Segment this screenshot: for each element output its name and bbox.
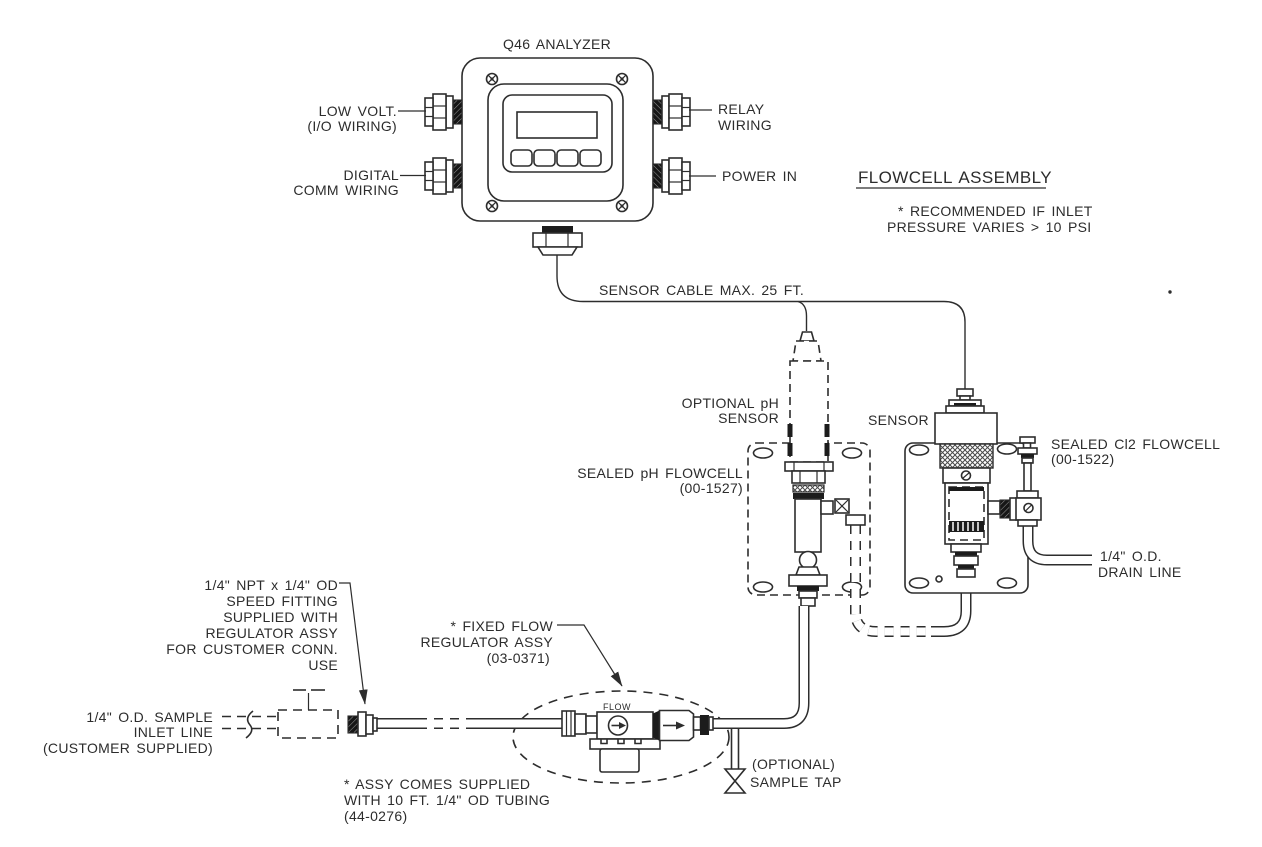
screw-icon bbox=[617, 201, 628, 212]
label-speed-fitting: 1/4" NPT x 1/4" OD bbox=[204, 577, 338, 593]
sample-tap-valve-icon bbox=[725, 769, 745, 781]
label-speed-fitting: FOR CUSTOMER CONN. bbox=[166, 641, 338, 657]
keypad-button-4 bbox=[580, 150, 601, 166]
label-sealed-ph-flowcell: (00-1527) bbox=[680, 480, 743, 496]
label-sealed-cl2-flowcell: SEALED Cl2 FLOWCELL bbox=[1051, 436, 1220, 452]
cl2-flowcell-assembly bbox=[905, 389, 1092, 593]
label-speed-fitting: REGULATOR ASSY bbox=[205, 625, 338, 641]
regulator-assembly bbox=[348, 606, 804, 793]
cable-gland-low-volt bbox=[425, 94, 462, 130]
label-optional-ph-sensor: SENSOR bbox=[718, 410, 779, 426]
label-digital-comm: DIGITAL bbox=[343, 167, 399, 183]
label-sensor-cable: SENSOR CABLE MAX. 25 FT. bbox=[599, 282, 804, 298]
cable-gland-power bbox=[653, 158, 690, 194]
analyzer-title: Q46 ANALYZER bbox=[503, 36, 611, 52]
outlet-tubing bbox=[712, 606, 804, 724]
label-flow: FLOW bbox=[603, 702, 631, 712]
ph-sensor bbox=[788, 332, 830, 462]
keypad-button-3 bbox=[557, 150, 578, 166]
label-speed-fitting: USE bbox=[308, 657, 338, 673]
screw-icon bbox=[487, 201, 498, 212]
sensor-cable bbox=[557, 255, 1172, 389]
leader-speed-fitting bbox=[339, 583, 365, 704]
q46-installation-diagram: Q46 ANALYZER LOW VOLT. (I/O WIRING) DIGI… bbox=[0, 0, 1262, 847]
mounting-slot bbox=[754, 448, 773, 458]
flowcell-note: PRESSURE VARIES > 10 PSI bbox=[887, 219, 1091, 235]
label-optional-ph-sensor: OPTIONAL pH bbox=[682, 395, 779, 411]
label-tubing-note: * ASSY COMES SUPPLIED bbox=[344, 776, 530, 792]
label-fixed-flow-regulator: * FIXED FLOW bbox=[451, 618, 554, 634]
keypad-button-1 bbox=[511, 150, 532, 166]
break-symbol bbox=[246, 711, 253, 738]
sensor-cable-branch bbox=[798, 302, 807, 332]
installation-diagram-page: Q46 ANALYZER LOW VOLT. (I/O WIRING) DIGI… bbox=[0, 0, 1262, 847]
label-sealed-cl2-flowcell: (00-1522) bbox=[1051, 451, 1114, 467]
sample-tap bbox=[725, 728, 745, 794]
label-speed-fitting: SUPPLIED WITH bbox=[223, 609, 338, 625]
keypad-button-2 bbox=[534, 150, 555, 166]
speed-fitting bbox=[348, 712, 377, 736]
mounting-slot bbox=[754, 582, 773, 592]
label-tubing-note: (44-0276) bbox=[344, 808, 407, 824]
label-drain-line: 1/4" O.D. bbox=[1100, 548, 1162, 564]
lcd-screen bbox=[517, 112, 597, 138]
label-digital-comm: COMM WIRING bbox=[293, 182, 399, 198]
label-sealed-ph-flowcell: SEALED pH FLOWCELL bbox=[577, 465, 743, 481]
analyzer bbox=[398, 58, 716, 255]
label-low-volt: LOW VOLT. bbox=[319, 103, 397, 119]
leader-regulator bbox=[557, 625, 622, 686]
label-speed-fitting: SPEED FITTING bbox=[226, 593, 338, 609]
label-sample-tap: SAMPLE TAP bbox=[750, 774, 842, 790]
cable-gland-relay bbox=[653, 94, 690, 130]
label-tubing-note: WITH 10 FT. 1/4" OD TUBING bbox=[344, 792, 550, 808]
label-low-volt: (I/O WIRING) bbox=[307, 118, 397, 134]
label-drain-line: DRAIN LINE bbox=[1098, 564, 1182, 580]
screw-icon bbox=[617, 74, 628, 85]
drain-tubing bbox=[1028, 524, 1092, 560]
cable-gland-sensor bbox=[533, 226, 582, 255]
label-sample-inlet: 1/4" O.D. SAMPLE bbox=[86, 709, 213, 725]
label-fixed-flow-regulator: REGULATOR ASSY bbox=[420, 634, 553, 650]
label-sample-inlet: INLET LINE bbox=[134, 724, 213, 740]
label-cl2-sensor: SENSOR bbox=[868, 412, 929, 428]
flowcell-note: * RECOMMENDED IF INLET bbox=[898, 203, 1093, 219]
filter-cup bbox=[600, 749, 639, 772]
label-power-in: POWER IN bbox=[722, 168, 797, 184]
label-sample-inlet: (CUSTOMER SUPPLIED) bbox=[43, 740, 213, 756]
check-valve bbox=[653, 711, 713, 741]
flowcell-assembly-heading: FLOWCELL ASSEMBLY bbox=[858, 168, 1052, 187]
label-relay-wiring: WIRING bbox=[718, 117, 772, 133]
label-sample-tap: (OPTIONAL) bbox=[752, 756, 835, 772]
screw-icon bbox=[487, 74, 498, 85]
stray-dot bbox=[1168, 290, 1171, 293]
cable-gland-digital bbox=[425, 158, 462, 194]
flow-regulator-body bbox=[562, 711, 660, 772]
mounting-slot bbox=[843, 448, 862, 458]
label-fixed-flow-regulator: (03-0371) bbox=[487, 650, 550, 666]
centerline-mark bbox=[293, 690, 325, 710]
label-relay-wiring: RELAY bbox=[718, 101, 765, 117]
cl2-sensor bbox=[935, 389, 997, 483]
